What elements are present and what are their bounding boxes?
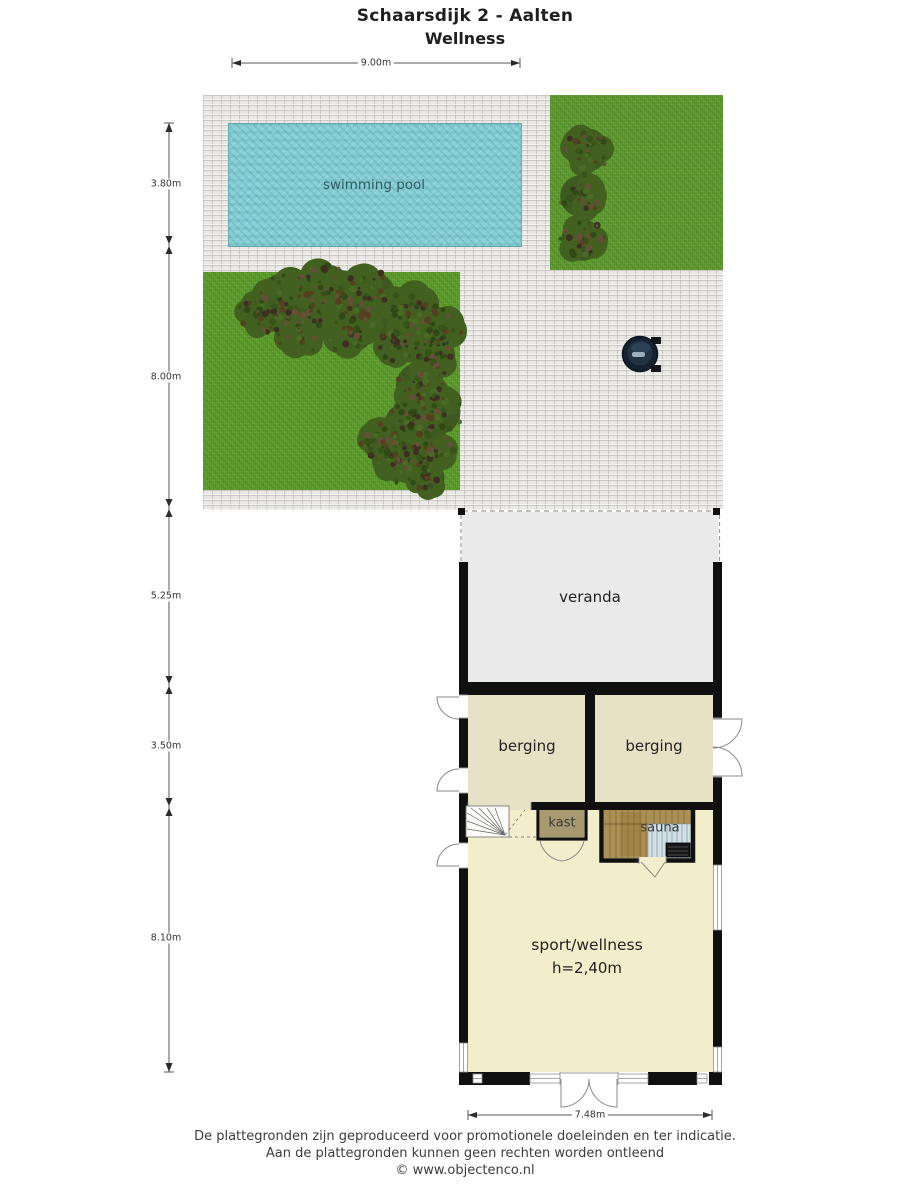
- berging-left-label: berging: [498, 737, 555, 755]
- staircase: [466, 806, 536, 837]
- dim-left-5: 8.10m: [148, 933, 184, 944]
- dim-bottom: 7.48m: [572, 1110, 608, 1121]
- footer-line-3: © www.objectenco.nl: [30, 1162, 900, 1179]
- dim-left-1: 3.80m: [148, 179, 184, 190]
- sport-height-label: h=2,40m: [552, 959, 622, 977]
- berging-left-door-top: [437, 697, 459, 719]
- dim-left-3: 5.25m: [148, 591, 184, 602]
- pool-label: swimming pool: [323, 177, 425, 193]
- footer-line-2: Aan de plattegronden kunnen geen rechten…: [30, 1145, 900, 1162]
- dim-left-4: 3.50m: [148, 741, 184, 752]
- sport-wellness-label: sport/wellness: [531, 936, 642, 954]
- dim-top: 9.00m: [358, 58, 394, 69]
- footer-disclaimer: De plattegronden zijn geproduceerd voor …: [30, 1128, 900, 1179]
- dim-left-2: 8.00m: [148, 372, 184, 383]
- sauna-stove: [666, 843, 690, 857]
- kast-door-left: [540, 841, 562, 861]
- veranda-dashed-outline: [458, 508, 720, 561]
- sport-entrance-door-left: [561, 1079, 589, 1107]
- sauna-door: [641, 862, 665, 877]
- hot-tub: [623, 337, 662, 373]
- berging-right-door-upper: [713, 719, 742, 748]
- footer-line-1: De plattegronden zijn geproduceerd voor …: [30, 1128, 900, 1145]
- dimension-lines: [164, 58, 712, 1120]
- kast-label: kast: [548, 816, 575, 831]
- floorplan-canvas: Schaarsdijk 2 - Aalten Wellness: [0, 0, 900, 1200]
- veranda-label: veranda: [559, 588, 621, 606]
- sauna-label: sauna: [640, 821, 679, 836]
- sport-left-door: [437, 844, 459, 866]
- kast-door-right: [562, 841, 584, 861]
- berging-right-label: berging: [625, 737, 682, 755]
- sport-entrance-door-right: [589, 1079, 617, 1107]
- sauna-cabin: [602, 808, 694, 878]
- berging-left-door-bottom: [437, 769, 459, 791]
- berging-right-door-lower: [713, 747, 742, 776]
- plan-linework: [0, 0, 900, 1200]
